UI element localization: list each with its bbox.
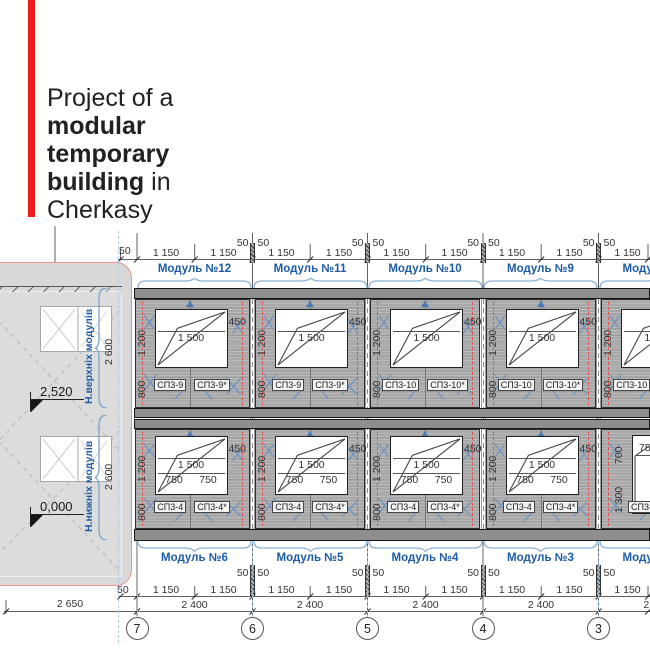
panel-tag: СП3-4* [427, 501, 462, 513]
panel-dim: 1 150 [143, 247, 189, 259]
half-width-dim: 750 [279, 474, 310, 486]
half-width-dim: 750 [313, 474, 344, 486]
half-width-dim: 750 [394, 474, 425, 486]
panel-dim: 1 150 [259, 247, 305, 259]
window: 1 500 750750 [506, 436, 579, 495]
ceiling-band-lower [134, 419, 650, 429]
module-brace-icon [368, 278, 483, 289]
panel-dim: 1 150 [316, 584, 362, 596]
panel-tag: СП3-3 [628, 501, 650, 513]
panel-tag: СП3-4 [387, 501, 419, 513]
module-label: Модуль №4 [368, 552, 483, 564]
module-panel-4: 1 200 800 1 500 750750 450 СП3-4СП3-4* [370, 429, 480, 529]
panel-tag: СП3-4 [154, 501, 186, 513]
window-offset-dim: 450 [349, 443, 367, 455]
module-brace-icon [483, 541, 598, 552]
drawing-sheet: Project of a modular temporary building … [0, 0, 650, 650]
upper-height-dim: 2 600 [103, 328, 115, 376]
panel-tag: СП3-9 [154, 379, 186, 391]
panel-dim: 1 150 [547, 247, 593, 259]
joint-column-hatch [596, 243, 601, 263]
joint-dim: 50 [457, 567, 479, 579]
joint-column-hatch [481, 243, 486, 263]
window: 1 500 [275, 309, 348, 368]
module-label: Модуль №6 [137, 552, 252, 564]
module-brace-icon [253, 541, 368, 552]
joint-dim: 50 [488, 567, 510, 579]
module-label: Модуль №12 [137, 263, 252, 275]
half-width-dim: 750 [159, 474, 190, 486]
module-label: Модуль №10 [368, 263, 483, 275]
module-brace-icon [137, 278, 252, 289]
panel-tag: СП3-4 [272, 501, 304, 513]
window: 1 500 750750 [390, 436, 463, 495]
panel-dim: 1 150 [547, 584, 593, 596]
module-panel-8-partial: 1 200 800 1 500 СП3-10СП3-10* [601, 299, 650, 408]
window-height-dim: 1 200 [602, 317, 614, 369]
window-offset-dim: 450 [349, 316, 367, 328]
window-height-dim: 1 200 [487, 317, 499, 369]
panel-tag: СП3-10* [543, 379, 583, 391]
module-brace-icon [599, 278, 650, 289]
half-width-dim: 750 [428, 474, 459, 486]
window: 1 500 750750 [275, 436, 348, 495]
panel-tag: СП3-4* [543, 501, 578, 513]
window-height-dim: 1 200 [487, 443, 499, 495]
offset-dim-bottom-left: 50 [117, 584, 129, 596]
module-panel-6: 1 200 800 1 500 750750 450 СП3-4СП3-4* [135, 429, 250, 529]
panel-dim: 1 150 [374, 584, 420, 596]
window-width-dim: 1 500 [507, 459, 578, 471]
panel-dim: 1 150 [432, 584, 478, 596]
grid-bubble-6: 6 [241, 617, 264, 640]
module-width-dim: 2 400 [280, 599, 340, 611]
window: 1 500 [621, 309, 650, 368]
module-width-dim: 2 400 [165, 599, 225, 611]
panel-dim: 1 150 [489, 584, 535, 596]
module-label: Модуль №8 [599, 263, 650, 275]
joint-dim: 50 [573, 567, 595, 579]
half-width-dim: 750 [544, 474, 575, 486]
grid-bubble-5: 5 [356, 617, 379, 640]
joint-dim: 50 [604, 567, 626, 579]
joint-dim: 50 [373, 567, 395, 579]
window-width-dim: 1 500 [622, 332, 650, 344]
panel-dim: 1 150 [374, 247, 420, 259]
window-width-dim: 1 500 [156, 459, 227, 471]
half-width-dim: 750 [193, 474, 224, 486]
joint-column-hatch [365, 243, 370, 263]
arrow-up-icon [537, 301, 545, 307]
module-panel-11: 1 200 800 1 500 450 СП3-9СП3-9* [255, 299, 365, 408]
panel-tag: СП3-10 [613, 379, 650, 391]
arrow-up-icon [306, 301, 314, 307]
panel-tag: СП3-10 [498, 379, 535, 391]
module-label: Модуль №5 [253, 552, 368, 564]
panel-dim: 1 150 [201, 247, 247, 259]
window-offset-dim: 450 [580, 316, 598, 328]
window-offset-dim: 450 [464, 443, 482, 455]
panel-dim: 1 150 [259, 584, 305, 596]
grid-bubble-4: 4 [472, 617, 495, 640]
joint-dim: 50 [258, 567, 280, 579]
half-width-dim: 750 [510, 474, 541, 486]
module-label: Модуль №3 [483, 552, 598, 564]
module-brace-icon [137, 541, 252, 552]
module-brace-icon [599, 541, 650, 552]
window-width-dim: 1 500 [391, 332, 462, 344]
window-width-dim: 1 500 [276, 332, 347, 344]
window-width-dim: 1 500 [156, 332, 227, 344]
window-height-dim: 1 200 [136, 317, 148, 369]
panel-tag: СП3-4* [312, 501, 347, 513]
offset-dim-top-left: 50 [119, 245, 131, 257]
window: 1 500 [155, 309, 228, 368]
elevation-mark-upper: 2,520 [30, 384, 88, 416]
window: 1 500 [506, 309, 579, 368]
panel-tag: СП3-9 [272, 379, 304, 391]
module-panel-2-partial: 700 1 300 750 СП3-3 [601, 429, 650, 529]
module-panel-5: 1 200 800 1 500 750750 450 СП3-4СП3-4* [255, 429, 365, 529]
window-width-dim: 1 500 [391, 459, 462, 471]
lower-height-dim: 2 600 [103, 453, 115, 501]
grid-bubble-7: 7 [126, 617, 149, 640]
module-panel-10: 1 200 800 1 500 450 СП3-10СП3-10* [370, 299, 480, 408]
panel-dim: 1 150 [605, 247, 650, 259]
module-brace-icon [368, 541, 483, 552]
floor-band-upper [134, 408, 650, 418]
module-panel-12: 1 200 800 1 500 450 СП3-9СП3-9* [135, 299, 250, 408]
opening-upper-dim: 700 [613, 437, 625, 473]
panel-tag: СП3-4 [503, 501, 535, 513]
panel-tag: СП3-10 [382, 379, 419, 391]
window-height-dim: 1 200 [371, 443, 383, 495]
panel-dim: 1 150 [489, 247, 535, 259]
window: 1 500 750750 [155, 436, 228, 495]
module-label: Модуль №2 [599, 552, 650, 564]
side-view-width-dim: 2 650 [20, 598, 120, 610]
joint-column-hatch [250, 243, 255, 263]
module-width-dim: 2 400 [627, 599, 650, 611]
window: 1 500 [390, 309, 463, 368]
panel-tag: СП3-4* [194, 501, 229, 513]
panel-dim: 1 150 [605, 584, 650, 596]
elevation-mark-lower: 0,000 [30, 499, 88, 531]
panel-tag: СП3-9* [312, 379, 347, 391]
window-height-dim: 1 200 [256, 317, 268, 369]
window-height-dim: 1 200 [136, 443, 148, 495]
arrow-up-icon [421, 301, 429, 307]
opening-lower-dim: 1 300 [613, 474, 625, 526]
base-band [134, 529, 650, 541]
module-label: Модуль №11 [253, 263, 368, 275]
panel-dim: 1 150 [316, 247, 362, 259]
module-label: Модуль №9 [483, 263, 598, 275]
panel-dim: 1 150 [201, 584, 247, 596]
module-width-dim: 2 400 [396, 599, 456, 611]
window-width-dim: 1 500 [276, 459, 347, 471]
panel-dim: 1 150 [143, 584, 189, 596]
module-panel-3: 1 200 800 1 500 750750 450 СП3-4СП3-4* [486, 429, 596, 529]
window-offset-dim: 450 [229, 316, 247, 328]
module-brace-icon [253, 278, 368, 289]
module-panel-9: 1 200 800 1 500 450 СП3-10СП3-10* [486, 299, 596, 408]
half-width-dim: 750 [633, 442, 650, 454]
joint-dim: 50 [342, 567, 364, 579]
grid-bubble-3: 3 [587, 617, 610, 640]
panel-dim: 1 150 [432, 247, 478, 259]
window-width-dim: 1 500 [507, 332, 578, 344]
window-offset-dim: 450 [580, 443, 598, 455]
module-width-dim: 2 400 [511, 599, 571, 611]
panel-tag: СП3-9* [194, 379, 229, 391]
elevation-triangle-icon [31, 400, 43, 412]
joint-dim: 50 [227, 567, 249, 579]
window-offset-dim: 450 [229, 443, 247, 455]
elevation-triangle-icon [31, 515, 43, 527]
roof-band [134, 288, 650, 299]
window-height-dim: 1 200 [371, 317, 383, 369]
window-offset-dim: 450 [464, 316, 482, 328]
arrow-up-icon [186, 301, 194, 307]
module-brace-icon [483, 278, 598, 289]
window-height-dim: 1 200 [256, 443, 268, 495]
axis-dash-line [118, 231, 119, 643]
panel-tag: СП3-10* [427, 379, 467, 391]
